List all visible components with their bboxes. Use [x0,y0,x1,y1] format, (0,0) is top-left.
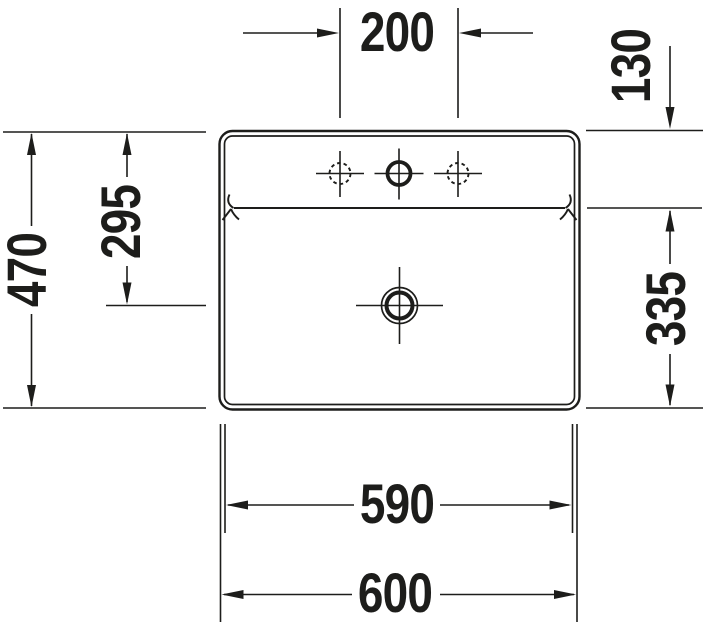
dim-label-600: 600 [358,565,432,621]
dimension-130 [666,46,675,129]
arrowhead [666,210,675,232]
faucet-hole-center [375,149,424,200]
ledge-hook-left [228,195,233,209]
drain-hole [356,267,443,344]
washbasin-dimension-drawing: 200 130 470 295 335 590 600 [0,0,705,630]
arrowhead [666,107,675,129]
arrowhead [550,501,572,510]
dim-label-295: 295 [93,185,149,259]
arrowhead [123,283,132,305]
dim-label-590: 590 [360,476,434,532]
extension-lines [3,8,703,622]
dim-label-130: 130 [603,29,659,103]
ledge-hook-right [566,195,571,209]
arrowhead [317,29,339,38]
faucet-hole-left-optional [316,151,364,197]
arrowhead [554,590,576,599]
arrowhead [666,385,675,407]
arrowhead [27,133,36,155]
arrowhead [226,501,248,510]
arrowhead [27,385,36,407]
arrowhead [459,29,481,38]
arrowhead [123,133,132,155]
dim-label-200: 200 [360,4,434,60]
dim-label-335: 335 [638,272,694,346]
arrowhead [222,590,244,599]
dim-label-470: 470 [0,233,55,307]
faucet-hole-right-optional [434,151,482,197]
